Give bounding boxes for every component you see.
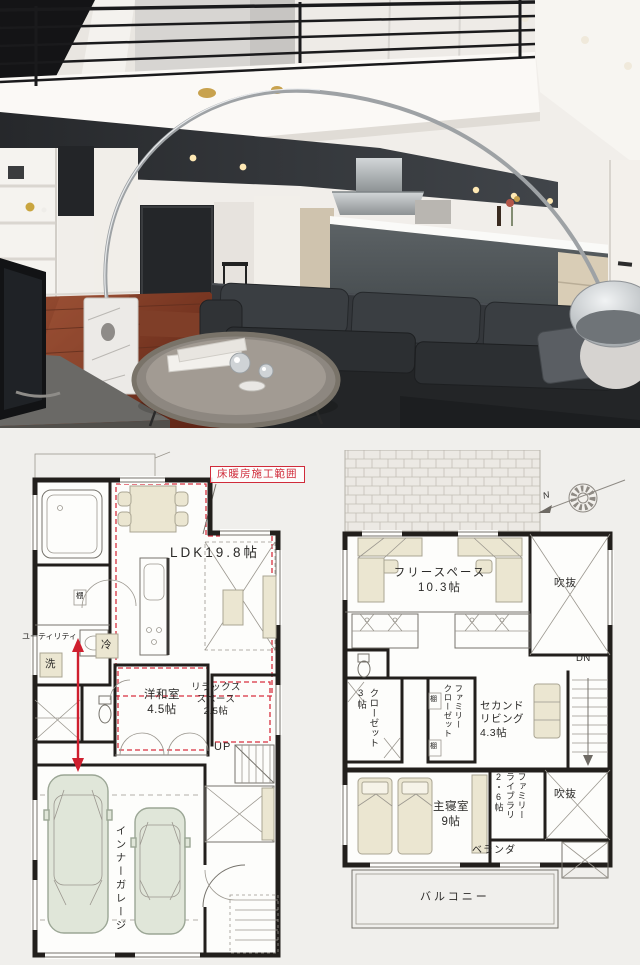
interior-photo-art [0,0,640,428]
fridge-label: 冷 [101,639,112,652]
bed [358,778,392,854]
relax-space-label: リラックス スペース 2.5帖 [178,682,254,718]
living-sofa [263,576,276,638]
black-accent-wall [58,146,94,216]
coffee-table [134,334,338,428]
closet-3jo-label: クローゼット 3帖 [354,688,378,758]
brass-light [198,88,216,98]
inner-garage-label: インナーガレージ [113,825,126,945]
washer-label: 洗 [45,658,56,671]
ldk-label: LDK19.8帖 [170,544,260,561]
roof-hatch [345,450,540,534]
living-table [223,590,243,625]
master-bedroom-label: 主寝室 9帖 [428,800,474,829]
bed [398,778,432,854]
shoe-cabinet [262,788,274,840]
second-living-label: セカンド リビング 4.3帖 [480,700,524,740]
second-living-sofa [534,684,560,738]
void-bottom-label: 吹抜 [554,788,577,801]
shelf-label-1f: 棚 [76,591,84,601]
car-small [131,808,190,934]
balcony-label: バルコニー [420,890,490,904]
utility-label: ユーティリティ [22,632,77,642]
void-top-label: 吹抜 [554,577,577,590]
shelf-bottom-label: 棚 [430,743,438,752]
wardrobe [472,775,487,853]
veranda-label: ベランダ [472,845,516,858]
interior-photo [0,0,640,428]
shelf-top-label: 棚 [430,696,438,705]
up-label: UP [214,740,231,754]
car-large [44,775,112,933]
family-library-label: ファミリー ライブラリ 2・6帖 [492,772,527,842]
floor-plan-1f: 床暖房施工範囲 LDK19.8帖 ユーティリティ 洗 棚 冷 洋和室 4.5帖 … [20,450,320,965]
compass-icon [538,480,625,513]
dn-label: DN [576,653,591,665]
family-closet-label: ファミリー クローゼット [442,684,464,758]
free-space-label: フリースペース 10.3帖 [380,566,500,595]
floor-heating-label: 床暖房施工範囲 [210,466,305,483]
floor-plan-2f: フリースペース 10.3帖 吹抜 DN クローゼット 3帖 ファミリー クローゼ… [340,450,630,945]
listing-image: 床暖房施工範囲 LDK19.8帖 ユーティリティ 洗 棚 冷 洋和室 4.5帖 … [0,0,640,965]
